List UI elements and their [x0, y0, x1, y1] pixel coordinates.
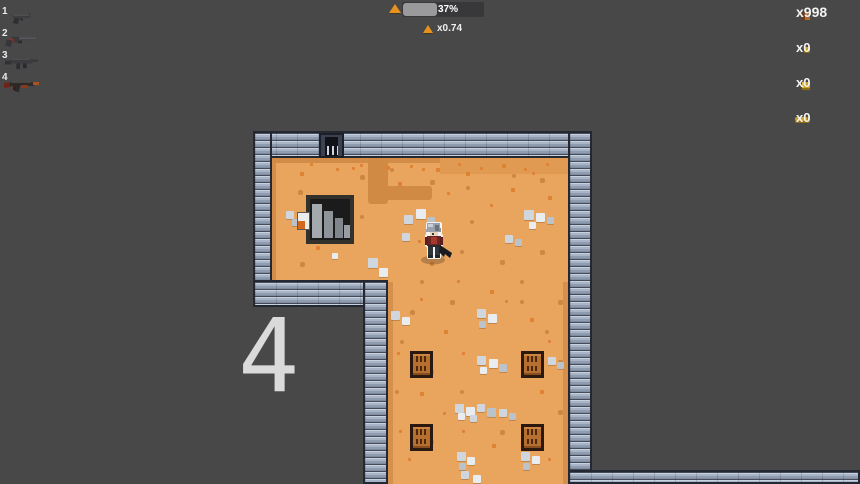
floor-speckle [399, 430, 402, 433]
floor-speckle [436, 168, 440, 172]
floor-speckle [443, 412, 446, 415]
pebble [286, 211, 294, 219]
floor-speckle [512, 174, 516, 178]
floor-speckle [500, 260, 505, 265]
pebble [332, 253, 338, 259]
dirt-patch [368, 186, 432, 200]
pebble [487, 408, 496, 417]
pebble [515, 239, 522, 246]
floor-speckle [420, 392, 424, 396]
ammo-count: x0 [796, 110, 810, 125]
floor-speckle [546, 163, 549, 166]
ammo-panel: x998 x0 x0 x0 [0, 0, 860, 130]
floor-speckle [316, 246, 320, 250]
floor-speckle [460, 250, 464, 254]
pebble [402, 233, 410, 241]
wall-bottom [568, 470, 860, 484]
pebble [505, 235, 513, 243]
floor-speckle [336, 168, 339, 171]
pebble [509, 413, 516, 420]
floor-speckle [398, 182, 402, 186]
floor-speckle [410, 310, 415, 315]
floor-speckle [447, 192, 450, 195]
floor-speckle [450, 300, 455, 305]
floor-speckle [462, 430, 465, 433]
wall-corridor-left [363, 280, 388, 484]
floor-speckle [460, 390, 464, 394]
floor-speckle [540, 178, 545, 183]
pebble [455, 404, 464, 413]
floor-speckle [408, 458, 411, 461]
pebble [379, 268, 388, 277]
floor-speckle [558, 300, 563, 305]
ammo-counter-1: x998 [796, 4, 858, 20]
wall-top [253, 131, 592, 158]
floor-speckle [490, 290, 494, 294]
pebble [529, 222, 536, 229]
floor-speckle [505, 300, 508, 303]
ammo-counter-2: x0 [796, 39, 858, 55]
pebble [548, 357, 556, 365]
floor-speckle [500, 430, 505, 435]
floor-speckle [520, 300, 524, 304]
pebble [473, 475, 481, 483]
crate [410, 424, 433, 451]
floor-speckle [444, 330, 448, 334]
floor-speckle [300, 172, 304, 176]
floor-speckle [300, 262, 305, 267]
floor-speckle [530, 318, 534, 322]
floor-speckle [458, 163, 461, 166]
pebble [499, 364, 507, 372]
pebble [532, 456, 540, 464]
gate-top-icon [319, 133, 344, 158]
floor-speckle [390, 168, 394, 172]
pebble [404, 215, 413, 224]
ammo-count: x0 [796, 75, 810, 90]
floor-speckle [511, 188, 515, 192]
floor-speckle [540, 250, 545, 255]
pebble [523, 463, 530, 470]
game-screen[interactable]: 4 1 2 [0, 0, 860, 484]
player-character [418, 221, 454, 265]
floor-speckle [360, 175, 365, 180]
pebble [489, 359, 498, 368]
pebble [457, 452, 466, 461]
pebble [391, 311, 400, 320]
floor-speckle [548, 458, 551, 461]
floor-speckle [524, 168, 527, 171]
pebble [488, 314, 497, 323]
floor-speckle [466, 172, 470, 176]
pebble [499, 409, 507, 417]
floor-speckle [397, 352, 400, 355]
floor-speckle [298, 190, 303, 195]
floor-speckle [520, 280, 524, 284]
floor-speckle [480, 167, 483, 170]
floor-speckle [422, 168, 425, 171]
pebble [480, 367, 487, 374]
floor-speckle [430, 180, 435, 185]
small-item [297, 212, 310, 230]
stairs-object [306, 195, 354, 244]
floor-speckle [457, 280, 460, 283]
crate [521, 351, 544, 378]
pebble [467, 457, 475, 465]
floor-speckle [360, 164, 363, 167]
floor-speckle [470, 220, 474, 224]
pebble [521, 452, 530, 461]
floor-speckle [490, 204, 493, 207]
pebble [470, 415, 477, 422]
pebble [458, 413, 465, 420]
ammo-count: x0 [796, 40, 810, 55]
floor-speckle [395, 390, 399, 394]
floor-speckle [400, 340, 404, 344]
floor-speckle [502, 164, 506, 168]
floor-speckle [352, 167, 355, 170]
pebble [416, 209, 426, 219]
ammo-counter-3: x0 [796, 74, 858, 90]
pebble [477, 356, 486, 365]
floor-speckle [462, 352, 465, 355]
crate [521, 424, 544, 451]
ammo-count: x998 [796, 4, 827, 20]
floor-speckle [545, 330, 549, 334]
pebble [536, 213, 545, 222]
pebble [459, 463, 466, 470]
floor-speckle [532, 172, 535, 175]
floor-speckle [558, 410, 563, 415]
wall-right [568, 131, 592, 472]
pebble [368, 258, 378, 268]
floor-speckle [360, 215, 364, 219]
floor-speckle [410, 165, 413, 168]
pebble [477, 404, 485, 412]
floor-speckle [548, 340, 551, 343]
ammo-counter-4: x0 [796, 109, 858, 125]
pebble [557, 362, 564, 369]
floor-speckle [492, 444, 496, 448]
pebble [524, 210, 534, 220]
floor-speckle [420, 298, 423, 301]
pebble [479, 321, 486, 328]
floor-speckle [540, 390, 544, 394]
floor-speckle [420, 280, 424, 284]
pebble [461, 471, 469, 479]
pebble [547, 217, 554, 224]
floor-speckle [310, 163, 313, 166]
pebble [402, 317, 410, 325]
pebble [477, 309, 486, 318]
level-number-overlay: 4 [238, 306, 299, 408]
floor-speckle [548, 196, 552, 200]
crate [410, 351, 433, 378]
floor-speckle [466, 186, 470, 190]
